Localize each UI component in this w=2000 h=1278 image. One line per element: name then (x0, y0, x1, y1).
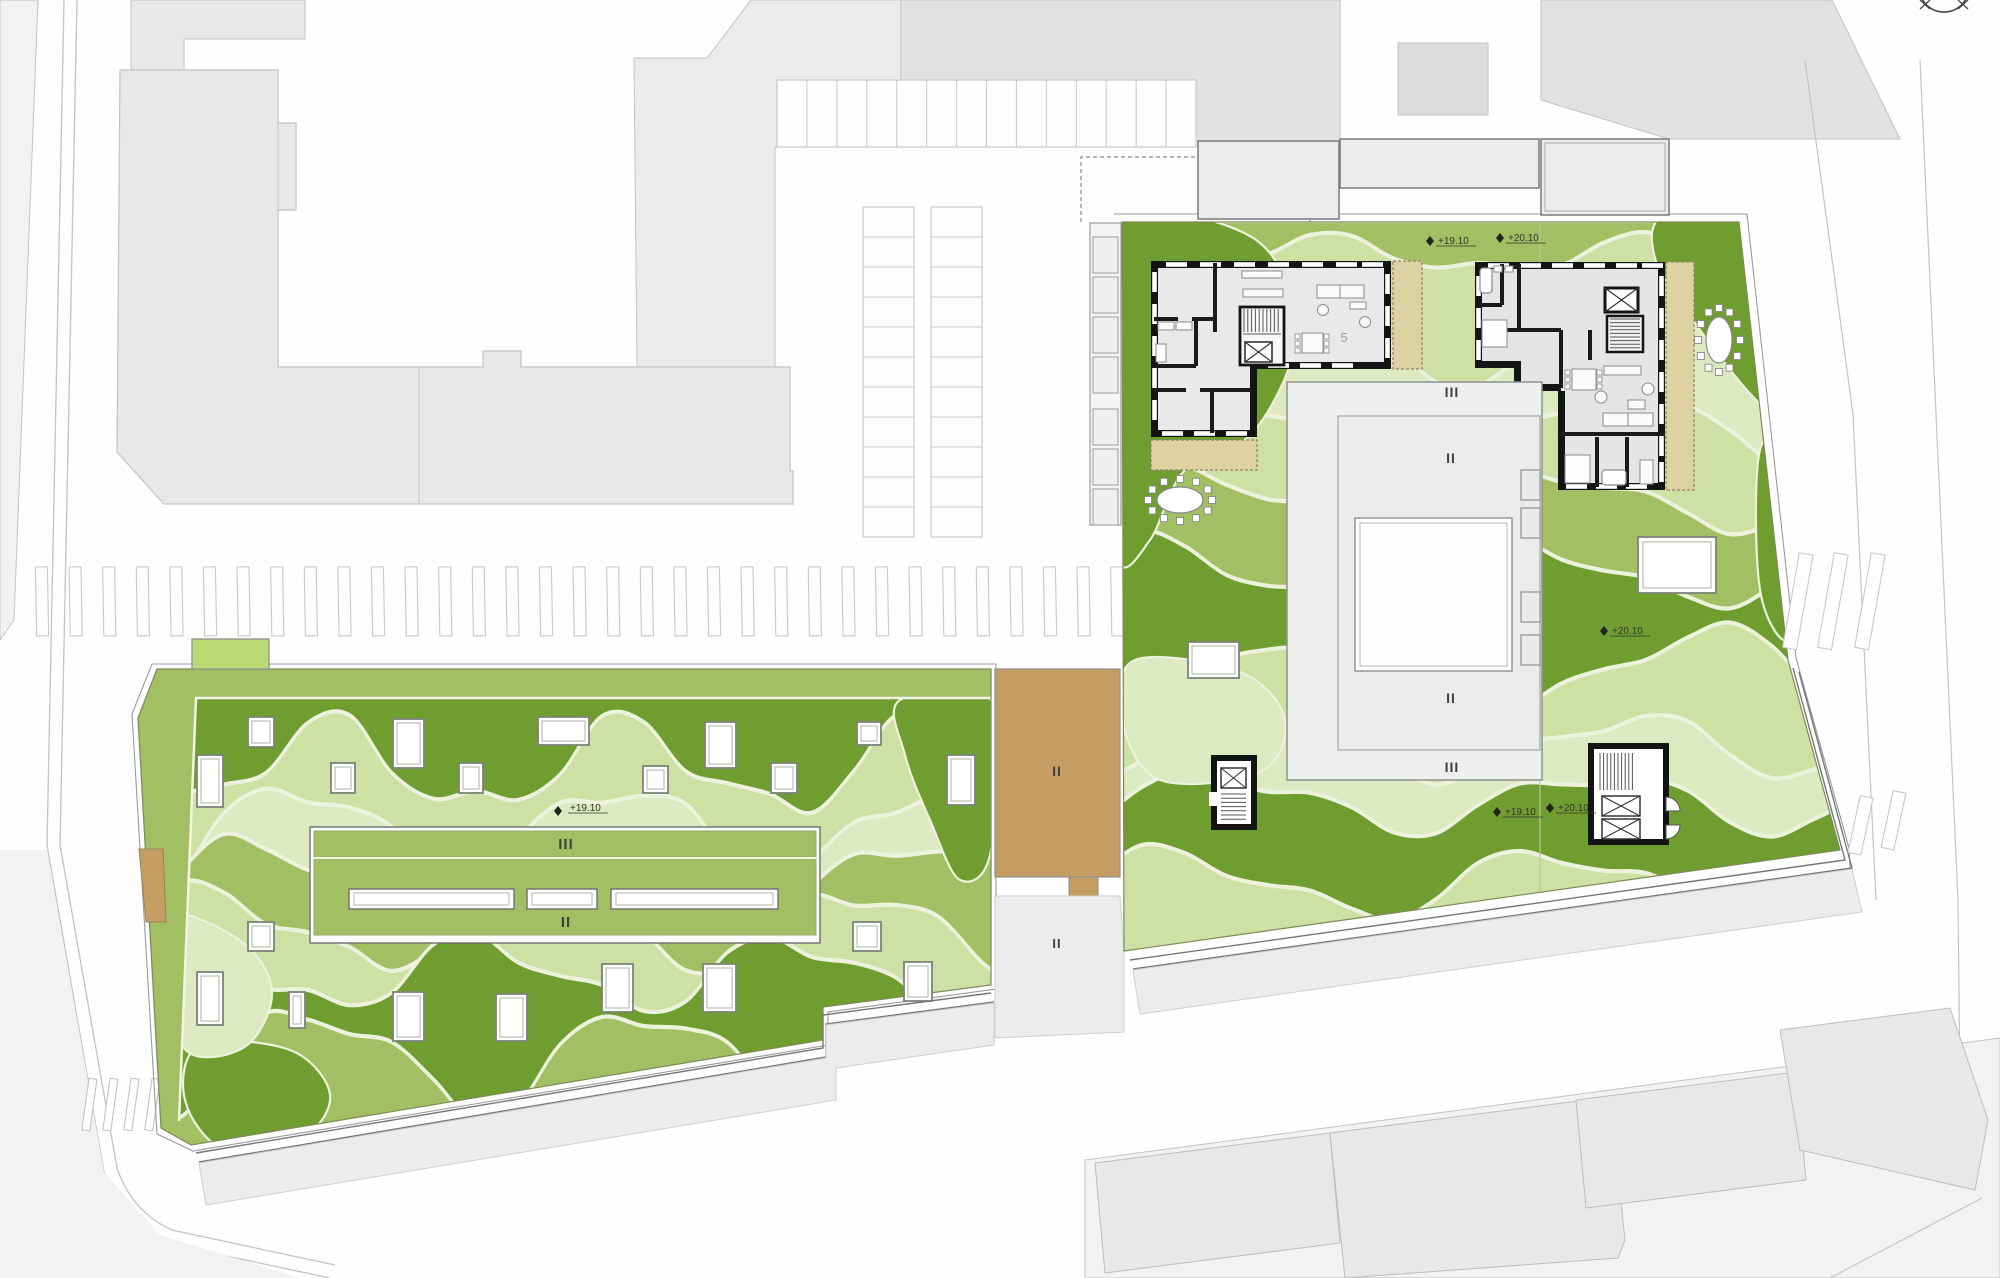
svg-text:+19.10: +19.10 (1438, 236, 1469, 247)
svg-text:II: II (1052, 936, 1061, 951)
svg-text:II: II (1446, 690, 1456, 706)
svg-text:+19.10: +19.10 (1505, 807, 1536, 818)
svg-text:III: III (558, 836, 574, 853)
svg-text:II: II (1052, 763, 1062, 779)
svg-text:II: II (561, 914, 571, 931)
svg-text:+20.10: +20.10 (1612, 626, 1643, 637)
svg-text:+19.10: +19.10 (570, 803, 601, 814)
svg-text:5: 5 (1340, 330, 1347, 345)
svg-text:II: II (1446, 450, 1456, 466)
svg-text:III: III (1445, 759, 1460, 775)
svg-text:+20.10: +20.10 (1558, 803, 1589, 814)
svg-text:III: III (1445, 384, 1460, 400)
svg-text:+20.10: +20.10 (1508, 233, 1539, 244)
